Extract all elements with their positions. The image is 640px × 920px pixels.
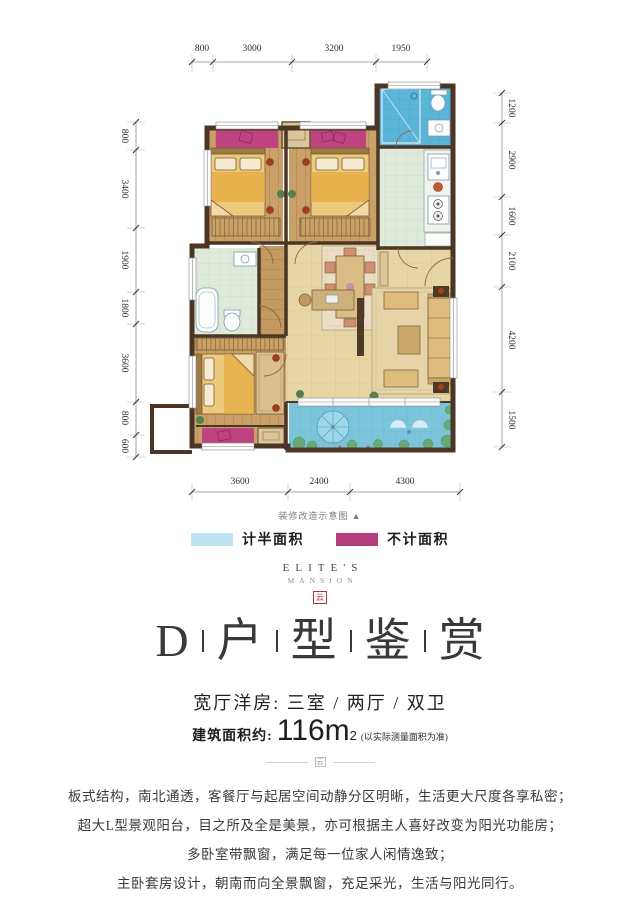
- brand-block: ELITE'S MANSION 云: [0, 562, 640, 605]
- dim-label-left-0: 800: [119, 129, 129, 143]
- dim-label-right-5: 1500: [506, 411, 516, 430]
- title-char: D: [155, 618, 188, 664]
- description-line: 主卧套房设计，朝南而向全景飘窗，充足采光，生活与阳光同行。: [0, 869, 640, 898]
- dim-label-bottom-1: 2400: [310, 477, 329, 487]
- dim-label-top-2: 3200: [325, 44, 344, 54]
- bedroom-2-bed: [211, 148, 265, 216]
- title-separator: [276, 630, 278, 652]
- divider-line: [333, 762, 375, 763]
- exterior-stair-bracket: [152, 406, 192, 452]
- title-char: 鉴: [365, 618, 411, 664]
- dim-label-right-0: 1200: [506, 99, 516, 118]
- dim-label-left-2: 1900: [119, 251, 129, 270]
- legend-label-half-area: 计半面积: [242, 529, 304, 549]
- dim-label-top-0: 800: [195, 44, 209, 54]
- dim-label-left-3: 1800: [119, 299, 129, 318]
- title-separator: [350, 630, 352, 652]
- dining-set: [322, 246, 378, 330]
- dim-label-bottom-0: 3600: [231, 477, 250, 487]
- brand-name: ELITE'S: [0, 562, 640, 574]
- area-value: 116m: [277, 714, 350, 748]
- floor-plan: [0, 0, 640, 540]
- dim-label-left-5: 800: [119, 411, 129, 425]
- legend-swatch-half-area: [191, 533, 233, 546]
- dim-label-right-1: 2900: [506, 151, 516, 170]
- page-title: D 户 型 鉴 赏: [0, 618, 640, 664]
- divider-line: [266, 762, 308, 763]
- title-separator: [424, 630, 426, 652]
- sofa-set: [372, 286, 452, 394]
- dim-label-top-1: 3000: [243, 44, 262, 54]
- description-line: 超大L型景观阳台，目之所及全是美景，亦可根据主人喜好改变为阳光功能房；: [0, 811, 640, 840]
- page: 800 3000 3200 1950 800 3400 1900 1800 36…: [0, 0, 640, 920]
- dim-label-top-3: 1950: [392, 44, 411, 54]
- legend-swatch-excluded-area: [336, 533, 378, 546]
- dim-label-right-4: 4200: [506, 331, 516, 350]
- description-line: 板式结构，南北通透，客餐厅与起居空间动静分区明晰，生活更大尺度各享私密；: [0, 782, 640, 811]
- tv-console: [357, 298, 364, 356]
- area-line: 建筑面积约: 116m 2 (以实际测量面积为准): [0, 714, 640, 748]
- description-paragraphs: 板式结构，南北通透，客餐厅与起居空间动静分区明晰，生活更大尺度各享私密； 超大L…: [0, 782, 640, 898]
- legend-label-excluded-area: 不计面积: [387, 529, 449, 549]
- dim-label-left-4: 3600: [119, 354, 129, 373]
- title-separator: [202, 630, 204, 652]
- dim-label-bottom-2: 4300: [396, 477, 415, 487]
- dim-label-right-2: 1600: [506, 207, 516, 226]
- brand-subname: MANSION: [0, 576, 640, 585]
- bedroom-3-bed: [311, 148, 369, 216]
- subtitle: 宽厅洋房: 三室 / 两厅 / 双卫: [0, 689, 640, 715]
- title-char: 户: [217, 618, 263, 664]
- divider-logo-icon: 云: [315, 757, 326, 767]
- area-note: (以实际测量面积为准): [361, 730, 448, 743]
- title-char: 型: [291, 618, 337, 664]
- legend: 计半面积 不计面积: [0, 529, 640, 549]
- area-superscript: 2: [350, 728, 357, 743]
- brand-logo-icon: 云: [313, 591, 327, 604]
- schematic-note: 装修改造示意图 ▲: [0, 509, 640, 522]
- dim-label-left-6: 600: [119, 439, 129, 453]
- dim-label-left-1: 3400: [119, 180, 129, 199]
- description-line: 多卧室带飘窗，满足每一位家人闲情逸致；: [0, 840, 640, 869]
- master-bed: [196, 352, 284, 414]
- title-char: 赏: [439, 618, 485, 664]
- dim-label-right-3: 2100: [506, 252, 516, 271]
- area-prefix: 建筑面积约:: [192, 725, 273, 745]
- section-divider: 云: [0, 757, 640, 767]
